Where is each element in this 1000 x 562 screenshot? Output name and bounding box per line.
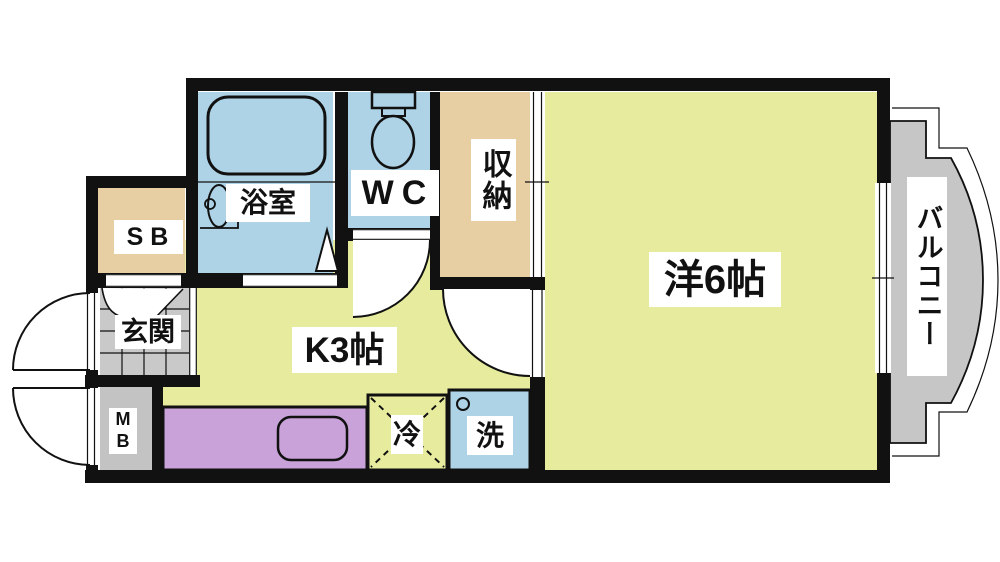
wall-entrance-bottom — [85, 375, 200, 387]
closet-label: 収納 — [471, 139, 516, 221]
entrance-label: 玄関 — [115, 315, 181, 349]
meterbox-door-opening — [84, 388, 100, 465]
wc-door-opening — [353, 229, 430, 240]
exterior-door-arcs — [13, 293, 90, 465]
wall-right-upper — [877, 78, 890, 185]
wall-right-lower — [877, 373, 890, 483]
wall-bottom — [85, 470, 890, 483]
wall-meterbox-right — [152, 387, 163, 470]
front-door-arc — [13, 293, 90, 370]
wall-bath-left — [186, 78, 198, 288]
shoe-box-label: SB — [114, 220, 183, 254]
wall-closet-bottom — [430, 277, 545, 290]
wall-bath-wc-divider — [335, 92, 348, 288]
meterbox-door-arc — [13, 388, 90, 465]
wall-shoebox-top — [86, 176, 198, 188]
floorplan-svg — [0, 0, 1000, 562]
front-door-opening — [84, 293, 100, 370]
bathroom-label: 浴室 — [226, 184, 310, 222]
wall-top — [186, 78, 890, 91]
washing-machine-label: 洗 — [467, 416, 513, 455]
bathroom-door-opening — [243, 274, 337, 287]
meter-box-label: MB — [109, 408, 137, 454]
toilet-label: WC — [351, 170, 439, 216]
western-room-label: 洋6帖 — [649, 252, 781, 307]
balcony-label: バルコニー — [907, 177, 947, 376]
floor-plan: 浴室 WC 収納 洋6帖 バルコニー SB 玄関 K3帖 MB 冷 洗 — [0, 0, 1000, 562]
shoebox-entrance-opening — [106, 274, 181, 287]
closet-sliding-opening — [530, 92, 545, 277]
kitchen-label: K3帖 — [292, 327, 397, 373]
refrigerator-label: 冷 — [391, 415, 423, 454]
wall-kitchen-room-divider — [530, 377, 545, 483]
